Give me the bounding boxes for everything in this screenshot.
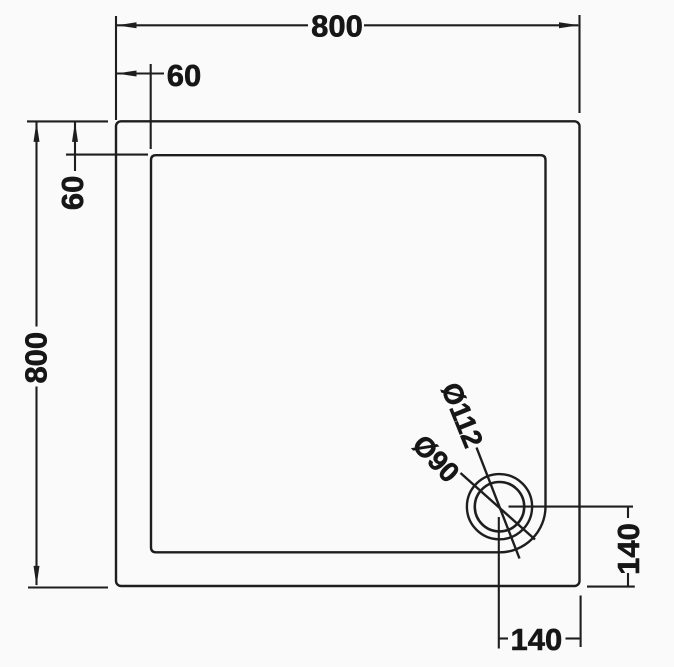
svg-text:800: 800: [19, 332, 54, 384]
svg-text:60: 60: [55, 176, 90, 210]
svg-text:800: 800: [311, 9, 363, 44]
svg-text:60: 60: [167, 58, 201, 93]
svg-text:140: 140: [511, 622, 563, 657]
svg-text:140: 140: [611, 523, 646, 575]
